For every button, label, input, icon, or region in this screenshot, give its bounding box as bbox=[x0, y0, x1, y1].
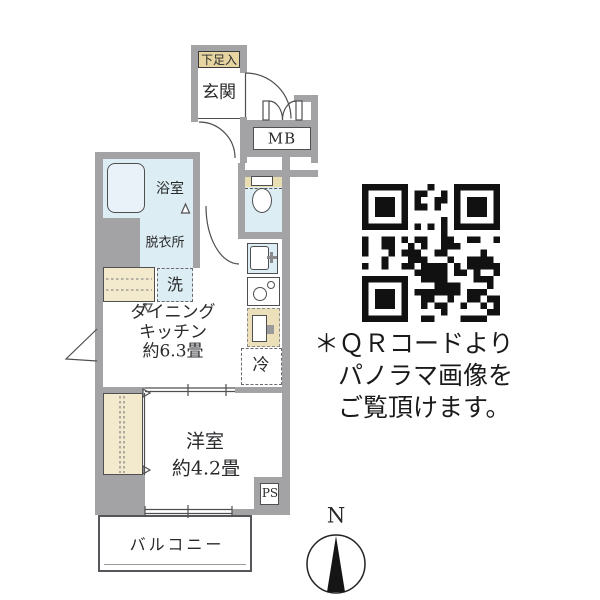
label-dressing-room: 脱衣所 bbox=[145, 237, 184, 250]
counter-fixture-tab bbox=[267, 325, 274, 334]
qr-note-line: ご覧頂けます。 bbox=[338, 395, 511, 420]
label-entrance: 玄関 bbox=[202, 85, 236, 102]
kitchen-storage bbox=[103, 267, 155, 302]
label-dining-kitchen: ダイニング bbox=[131, 305, 216, 322]
label-washing-machine: 洗 bbox=[167, 277, 183, 293]
wall bbox=[103, 475, 145, 515]
compass-north-label: N bbox=[327, 506, 345, 527]
label-meter-box: MB bbox=[268, 132, 296, 147]
floor-plan-sheet: 下足入 玄関 MB 浴室 脱衣所 洗 ダイニング キッチン 約6.3畳 冷 洋室… bbox=[0, 0, 600, 600]
balcony-inner-line bbox=[104, 564, 246, 565]
wall bbox=[191, 45, 198, 122]
closet bbox=[103, 393, 143, 475]
counter-fixture bbox=[252, 315, 267, 342]
door-and-window-symbols bbox=[0, 0, 600, 600]
wall bbox=[240, 45, 247, 73]
qr-code bbox=[362, 184, 500, 322]
wall bbox=[238, 170, 318, 177]
stove-burner-icon bbox=[253, 287, 267, 301]
label-western-room: 洋室 bbox=[186, 433, 224, 452]
bathtub bbox=[107, 163, 145, 213]
qr-note-line: ＊ＱＲコードより bbox=[314, 331, 514, 356]
label-refrigerator: 冷 bbox=[253, 358, 270, 375]
wall bbox=[282, 157, 290, 510]
wall bbox=[235, 387, 290, 393]
stove-burner-icon bbox=[267, 281, 275, 289]
wall bbox=[95, 152, 200, 159]
faucet-icon bbox=[270, 252, 273, 263]
toilet-bowl bbox=[252, 188, 272, 213]
label-western-room: 約4.2畳 bbox=[172, 460, 240, 479]
wall bbox=[238, 163, 245, 239]
wall bbox=[193, 159, 200, 268]
wall bbox=[95, 152, 103, 515]
label-dining-kitchen: キッチン bbox=[139, 325, 207, 342]
qr-note-line: パノラマ画像を bbox=[338, 363, 513, 388]
wall bbox=[103, 218, 140, 267]
entrance-step-line bbox=[198, 118, 240, 119]
label-dining-kitchen: 約6.3畳 bbox=[142, 344, 203, 361]
label-bathroom: 浴室 bbox=[156, 182, 184, 196]
label-balcony: バルコニー bbox=[130, 537, 225, 553]
label-pipe-space: PS bbox=[262, 487, 278, 499]
toilet-tank bbox=[251, 176, 273, 186]
label-shoe-cabinet: 下足入 bbox=[201, 54, 237, 66]
